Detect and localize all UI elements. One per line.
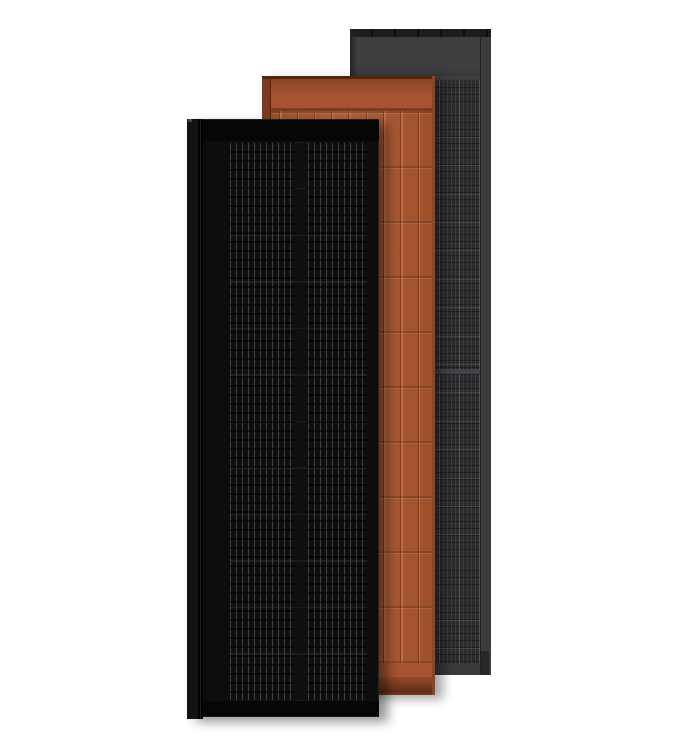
gray-shingle-top-rail <box>350 29 491 37</box>
black-solar-shingle <box>187 119 379 717</box>
black-shingle-surface <box>203 141 379 702</box>
terracotta-shingle-header-band <box>262 79 435 108</box>
gray-shingle-header-band <box>350 37 491 76</box>
gray-shingle-corner-notch <box>481 651 489 675</box>
black-shingle-center-gap <box>295 142 308 702</box>
gray-shingle-right-frame <box>480 37 491 675</box>
terracotta-shingle-right-edge <box>432 76 435 695</box>
black-shingle-cell-field <box>230 142 367 702</box>
black-shingle-corner-glint <box>188 119 192 122</box>
black-shingle-busbar-column-left <box>230 142 295 702</box>
black-shingle-busbar-column-right <box>308 142 367 702</box>
solar-shingle-lineup <box>0 0 684 748</box>
black-shingle-bottom-rail <box>203 701 379 717</box>
black-shingle-header-band <box>203 119 379 142</box>
black-shingle-left-flange <box>187 119 203 719</box>
